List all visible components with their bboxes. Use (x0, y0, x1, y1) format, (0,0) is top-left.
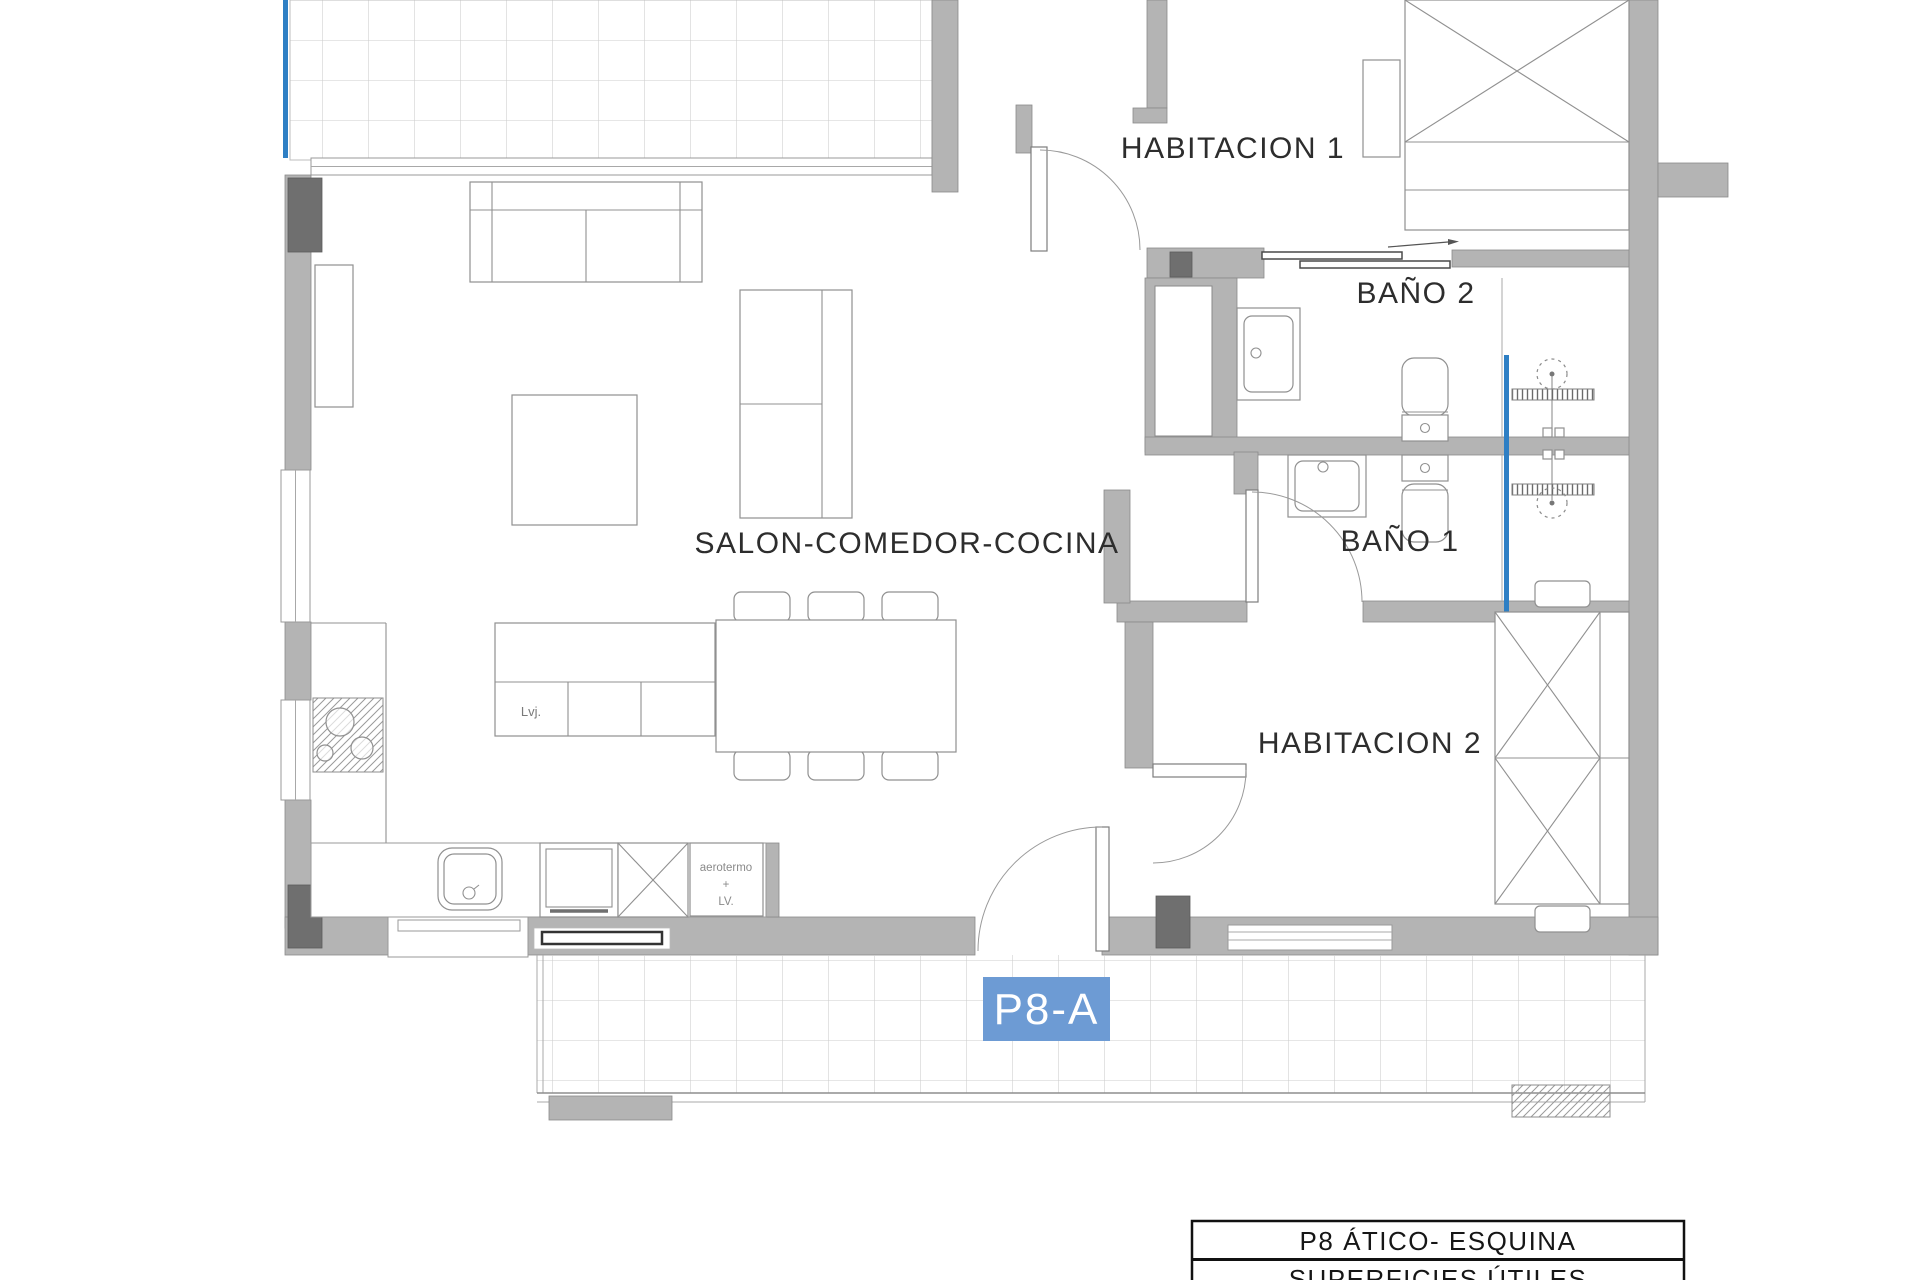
title-block-row2: SUPERFICIES ÚTILES (1289, 1264, 1588, 1280)
bano2-toilet-icon (1402, 358, 1448, 441)
bano2-sink-icon (1237, 308, 1300, 400)
unit-badge: P8-A (983, 977, 1110, 1041)
hab1-bed-icon (1405, 0, 1629, 230)
terrace-blue-edge (283, 0, 288, 158)
pillar-top-left (288, 178, 322, 252)
bottom-window-center (534, 928, 670, 949)
shower-screen-blue (1504, 355, 1509, 645)
left-window-1 (281, 470, 310, 622)
terrace-top-tiles (290, 0, 932, 160)
wall-bath-top-right (1452, 250, 1630, 267)
tv-unit-icon (315, 265, 353, 407)
wall-hab2-left (1125, 622, 1153, 768)
bottom-window-hab2 (1228, 925, 1392, 950)
appliance-space-icon (618, 843, 688, 917)
island-label: Lvj. (521, 704, 541, 719)
aerotermo-label-3: LV. (718, 896, 733, 908)
side-sofa-icon (740, 290, 852, 518)
aerotermo-unit: aerotermo + LV. (690, 843, 763, 916)
entrance-door (978, 827, 1109, 951)
oven-icon (540, 843, 618, 917)
wall-right-stub (1658, 163, 1728, 197)
sofa-icon (470, 182, 702, 282)
bano2-shower-icon (1512, 359, 1594, 437)
floorplan-page: Lvj. aerotermo (0, 0, 1920, 1280)
wall-hab1-door-stub (1016, 105, 1032, 153)
hab2-bed-icon (1495, 612, 1629, 904)
wall-bano1-bottom-left (1117, 601, 1247, 622)
wall-right-exterior (1629, 0, 1658, 955)
slide-arrow-icon (1448, 239, 1459, 245)
sink-icon (438, 848, 502, 910)
hab2-nightstand-bottom-icon (1535, 906, 1590, 932)
label-habitacion1: HABITACION 1 (1121, 132, 1345, 165)
aerotermo-label-1: aerotermo (700, 862, 752, 874)
left-window-2 (281, 700, 310, 800)
label-bano1: BAÑO 1 (1340, 524, 1459, 558)
title-block: P8 ÁTICO- ESQUINA SUPERFICIES ÚTILES (1192, 1221, 1684, 1280)
floorplan-drawing: Lvj. aerotermo (0, 0, 1920, 1280)
bottom-window-kitchen (388, 917, 528, 957)
title-block-row1: P8 ÁTICO- ESQUINA (1300, 1226, 1577, 1256)
salon-top-window (311, 158, 932, 175)
label-bano2: BAÑO 2 (1356, 276, 1475, 310)
kitchen-island-icon: Lvj. (495, 623, 715, 736)
label-salon: SALON-COMEDOR-COCINA (694, 527, 1119, 560)
terrace-wall-stub (549, 1096, 672, 1120)
wall-left-b (285, 622, 311, 700)
dining-set-icon (716, 592, 956, 780)
cooktop-icon (313, 698, 383, 772)
hab2-door (1153, 764, 1246, 863)
pillar-hab2 (1156, 896, 1190, 948)
salon-furniture: Lvj. (315, 182, 956, 780)
wall-top-middle-foot (1133, 108, 1167, 123)
wall-terrace-right (932, 0, 958, 192)
terrace-hatched-block (1512, 1085, 1610, 1117)
wall-top-middle (1147, 0, 1167, 108)
aerotermo-label-2: + (723, 879, 730, 891)
hab1-furniture (1363, 0, 1629, 230)
terrace-bottom: P8-A (537, 955, 1645, 1120)
coffee-table-icon (512, 395, 637, 525)
unit-badge-label: P8-A (994, 985, 1100, 1034)
pillar-hall (1170, 252, 1192, 277)
label-habitacion2: HABITACION 2 (1258, 727, 1482, 760)
wall-bano1-left (1234, 452, 1258, 494)
terrace-top (283, 0, 932, 175)
bano1-sink-icon (1288, 455, 1366, 517)
hab2-nightstand-top-icon (1535, 581, 1590, 607)
bano2-sliding-door (1262, 239, 1459, 268)
shaft-void (1155, 286, 1212, 436)
hab2-furniture (1495, 581, 1629, 932)
hab1-nightstand-icon (1363, 60, 1400, 157)
wall-bath-top-left (1147, 248, 1264, 278)
bano1-shower-icon (1512, 450, 1594, 518)
